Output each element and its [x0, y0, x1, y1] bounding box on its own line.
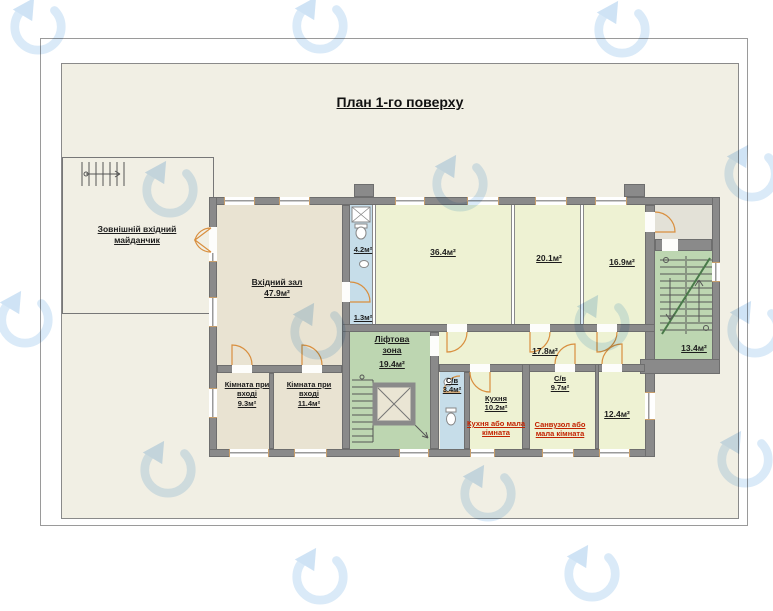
watermark-logo-icon: [561, 541, 623, 608]
drawing-sheet: План 1-го поверху Зовнішній вхідний майд…: [61, 63, 739, 519]
room-label-124: 12.4м²: [592, 409, 642, 420]
room-label-201: 20.1м²: [524, 253, 574, 264]
room-label-hall: Вхідний зал47.9м²: [245, 277, 309, 298]
room-label-bath-top-sm: 1.3м²: [338, 313, 388, 322]
door-gap: [342, 282, 350, 302]
door-gap: [430, 336, 439, 356]
watermark-logo-icon: [289, 544, 351, 611]
room-note-kitchen: Кухня або мала кімната: [463, 419, 529, 437]
window: [399, 449, 429, 457]
room-bath-strip: [350, 205, 372, 324]
wall-bath97-124: [595, 364, 599, 449]
door-gap: [232, 365, 252, 373]
page-frame: План 1-го поверху Зовнішній вхідний майд…: [40, 38, 748, 526]
page: { "title": "План 1-го поверху", "rooms":…: [0, 0, 773, 580]
room-label-lift-zone: Ліфтова зона 19.4м²: [366, 334, 418, 370]
window: [712, 262, 720, 282]
room-label-corridor: 17.8м²: [520, 346, 570, 357]
window: [229, 449, 269, 457]
room-label-platform: Зовнішній вхідний майданчик: [82, 224, 192, 245]
room-label-kitchen: Кухня10.2м²: [470, 394, 522, 413]
window: [645, 392, 655, 420]
room-label-bath-34: С/в3.4м²: [440, 376, 464, 395]
window: [395, 197, 425, 205]
window: [535, 197, 567, 205]
window: [279, 197, 310, 205]
door-gap: [662, 239, 678, 251]
plan-title: План 1-го поверху: [62, 94, 738, 110]
window: [599, 449, 630, 457]
partition-201-169: [580, 205, 584, 324]
window: [209, 388, 217, 418]
door-gap: [555, 364, 575, 372]
window: [294, 449, 327, 457]
wall-wing-bottom: [640, 359, 720, 374]
door-gap: [447, 324, 467, 332]
window: [467, 197, 499, 205]
window: [209, 297, 217, 327]
vent-shaft-left: [354, 184, 374, 197]
room-label-entry-1: Кімната при вході9.3м²: [223, 380, 271, 408]
door-gap: [209, 227, 217, 253]
room-label-bath-97: С/в9.7м²: [530, 374, 590, 393]
door-gap: [470, 364, 490, 372]
room-201: [514, 205, 580, 324]
window: [595, 197, 627, 205]
door-gap: [530, 324, 550, 332]
room-label-169: 16.9м²: [597, 257, 647, 268]
room-label-stair-hall: 13.4м²: [669, 343, 719, 354]
vent-shaft-right: [624, 184, 645, 197]
window: [470, 449, 495, 457]
door-gap: [302, 365, 322, 373]
room-label-bath-top: 4.2м²: [338, 245, 388, 254]
window: [224, 197, 255, 205]
room-label-entry-2: Кімната при вході11.4м²: [285, 380, 333, 408]
room-label-364: 36.4м²: [418, 247, 468, 258]
room-364: [376, 205, 511, 324]
wall-bottom: [209, 449, 655, 457]
room-vestibule: [655, 205, 712, 239]
window: [542, 449, 574, 457]
room-note-bath-97: Санвузол або мала кімната: [528, 420, 592, 438]
partition-364-201: [511, 205, 515, 324]
door-gap: [645, 212, 655, 232]
door-gap: [602, 364, 622, 372]
partition-strip-364: [372, 205, 376, 324]
door-gap: [597, 324, 617, 332]
